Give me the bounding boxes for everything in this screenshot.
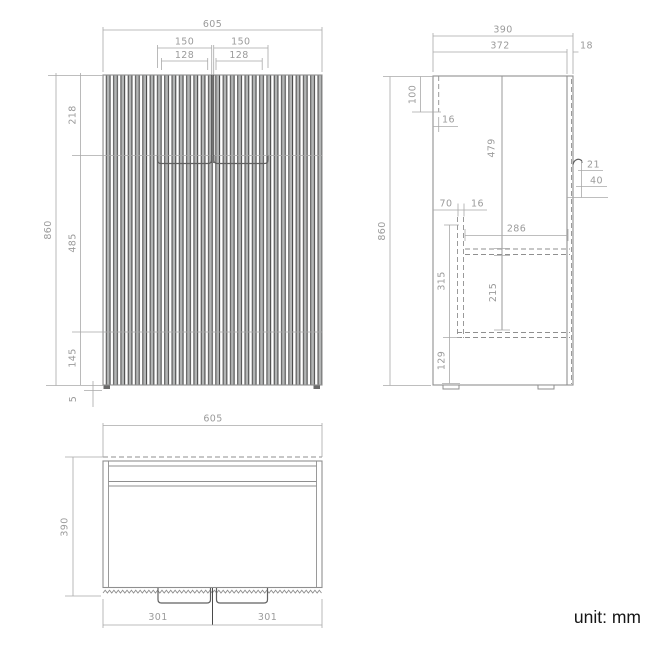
top-outline (103, 461, 322, 588)
top-view: 605 390 301 301 (60, 414, 323, 629)
dim-label-plinth-height: 129 (437, 351, 448, 370)
dim-label-recess-right: 150 (231, 37, 250, 48)
side-handle-profile (573, 159, 582, 164)
dim-label-front-height: 860 (43, 220, 54, 239)
dim-label-top-width: 605 (203, 414, 222, 425)
top-right-handle (217, 588, 268, 603)
dim-label-bottom-section: 145 (68, 348, 79, 367)
front-right-foot (314, 386, 321, 390)
dim-label-door-height: 479 (487, 138, 498, 157)
side-left-foot (443, 385, 459, 389)
technical-drawing-page: 605 150 150 128 128 218 860 485 145 5 39… (0, 0, 650, 650)
dim-label-shelf-depth: 286 (507, 224, 526, 235)
side-right-foot (538, 385, 554, 389)
dim-label-panel-thickness: 16 (442, 115, 455, 126)
unit-note: unit: mm (574, 607, 641, 627)
dim-label-recess-left: 150 (175, 37, 194, 48)
dim-label-middle-section: 485 (68, 233, 79, 252)
dim-label-front-width: 605 (203, 19, 222, 30)
top-inner-structure (109, 461, 317, 588)
dim-label-top-notch: 100 (408, 85, 419, 104)
dim-label-top-section: 218 (68, 105, 79, 124)
side-view: 390 372 18 860 100 16 479 21 40 70 16 28… (377, 25, 608, 390)
dim-label-handle-drop: 40 (590, 176, 603, 187)
dim-label-door-left: 301 (148, 612, 167, 623)
dim-label-shelf-clearance: 215 (488, 283, 499, 302)
dim-label-handle-offset: 21 (587, 160, 600, 171)
dim-label-depth: 390 (493, 25, 512, 36)
front-view: 605 150 150 128 128 218 860 485 145 5 (43, 19, 322, 407)
front-fluted-surface (103, 75, 322, 385)
dim-label-rail-thickness: 16 (471, 199, 484, 210)
dim-label-front-thickness: 18 (580, 41, 593, 52)
cabinet-dimension-drawing: 605 150 150 128 128 218 860 485 145 5 39… (0, 0, 650, 650)
dim-label-side-height: 860 (377, 221, 388, 240)
dim-label-shelf-zone: 315 (437, 271, 448, 290)
dim-label-carcass-depth: 372 (490, 41, 509, 52)
dim-label-foot-height: 5 (68, 396, 79, 402)
dim-label-door-right: 301 (258, 612, 277, 623)
dim-label-rail-inset: 70 (440, 199, 453, 210)
dim-label-handle-right: 128 (229, 50, 248, 61)
front-left-foot (104, 386, 111, 390)
dim-label-top-depth: 390 (60, 517, 71, 536)
dim-label-handle-left: 128 (175, 50, 194, 61)
